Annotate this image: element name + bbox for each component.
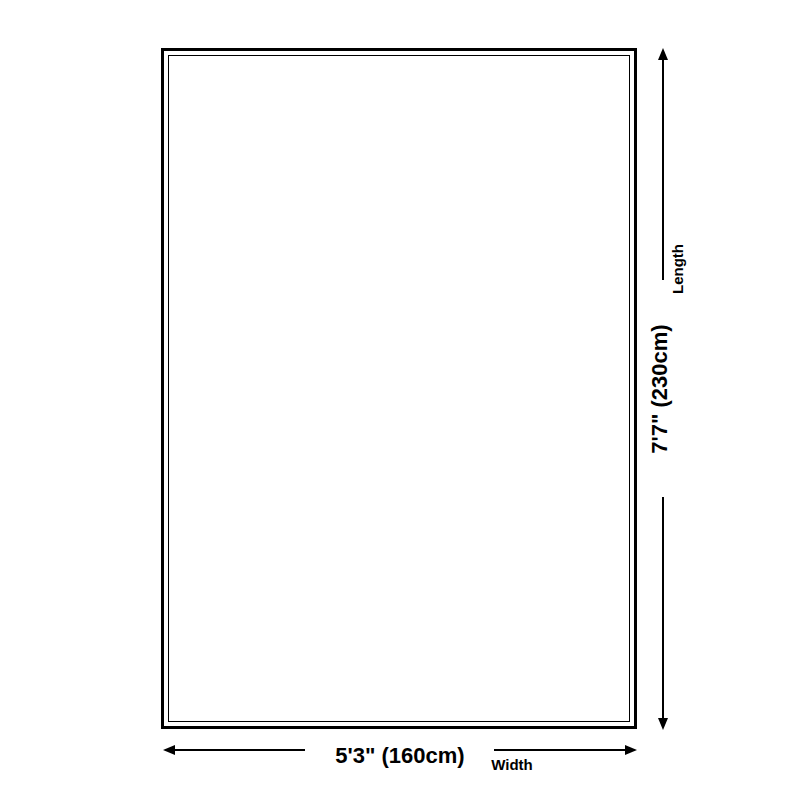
width-line-left — [173, 749, 305, 751]
arrow-down-icon — [658, 718, 668, 730]
width-axis-label: Width — [491, 757, 533, 772]
product-outline-outer — [161, 48, 637, 729]
length-line-lower — [662, 497, 664, 720]
width-line-right — [494, 749, 626, 751]
length-line-upper — [662, 58, 664, 280]
length-axis-label: Length — [670, 244, 685, 294]
width-value: 5'3" (160cm) — [335, 745, 464, 767]
length-value: 7'7" (230cm) — [649, 324, 671, 453]
product-outline-inner — [168, 55, 630, 722]
arrow-right-icon — [625, 745, 637, 755]
dimension-diagram: Length 7'7" (230cm) 5'3" (160cm) Width — [0, 0, 800, 800]
